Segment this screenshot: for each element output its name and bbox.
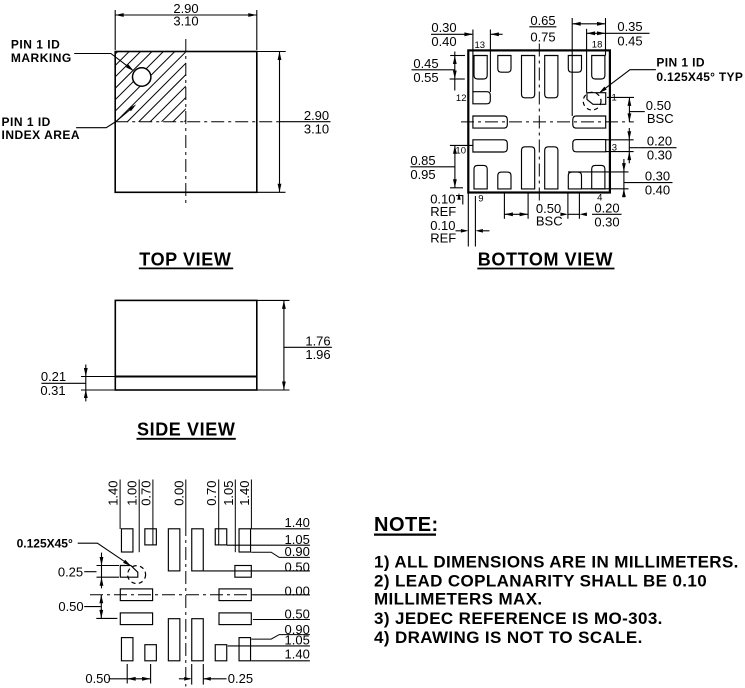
svg-text:0.65: 0.65 bbox=[530, 13, 555, 28]
svg-text:3) JEDEC REFERENCE IS MO-303.: 3) JEDEC REFERENCE IS MO-303. bbox=[374, 609, 663, 628]
svg-text:0.125X45°: 0.125X45° bbox=[17, 537, 73, 551]
svg-text:0.20: 0.20 bbox=[647, 134, 672, 149]
svg-text:1.05: 1.05 bbox=[221, 480, 236, 505]
svg-text:0.25: 0.25 bbox=[58, 564, 83, 579]
svg-text:0.00: 0.00 bbox=[171, 480, 186, 505]
svg-text:0.55: 0.55 bbox=[413, 70, 438, 85]
svg-text:2) LEAD COPLANARITY SHALL BE 0: 2) LEAD COPLANARITY SHALL BE 0.10 bbox=[374, 572, 707, 591]
svg-text:MILLIMETERS MAX.: MILLIMETERS MAX. bbox=[374, 590, 543, 609]
svg-text:MARKING: MARKING bbox=[11, 51, 72, 65]
svg-text:SIDE VIEW: SIDE VIEW bbox=[137, 420, 235, 440]
svg-text:REF: REF bbox=[430, 204, 456, 219]
svg-text:0.70: 0.70 bbox=[138, 480, 153, 505]
svg-text:1.96: 1.96 bbox=[305, 347, 330, 362]
svg-text:18: 18 bbox=[592, 40, 603, 51]
svg-text:0.45: 0.45 bbox=[617, 33, 642, 48]
svg-text:3.10: 3.10 bbox=[304, 121, 329, 136]
svg-text:12: 12 bbox=[456, 93, 467, 104]
svg-text:4) DRAWING IS NOT TO SCALE.: 4) DRAWING IS NOT TO SCALE. bbox=[374, 628, 643, 647]
svg-text:NOTE:: NOTE: bbox=[374, 514, 439, 536]
svg-text:1.40: 1.40 bbox=[106, 480, 121, 505]
svg-text:1) ALL DIMENSIONS ARE IN MILLI: 1) ALL DIMENSIONS ARE IN MILLIMETERS. bbox=[374, 553, 739, 572]
svg-text:0.50: 0.50 bbox=[85, 671, 110, 686]
svg-text:0.75: 0.75 bbox=[530, 29, 555, 44]
svg-text:1.40: 1.40 bbox=[285, 515, 310, 530]
svg-text:0.25: 0.25 bbox=[228, 671, 253, 686]
svg-text:0.95: 0.95 bbox=[410, 167, 435, 182]
svg-text:0.70: 0.70 bbox=[204, 480, 219, 505]
svg-text:PIN 1 ID: PIN 1 ID bbox=[656, 56, 705, 70]
svg-text:9: 9 bbox=[478, 194, 483, 205]
svg-text:BOTTOM VIEW: BOTTOM VIEW bbox=[478, 249, 613, 269]
svg-text:TOP VIEW: TOP VIEW bbox=[139, 249, 231, 269]
svg-text:0.30: 0.30 bbox=[594, 214, 619, 229]
svg-text:0.90: 0.90 bbox=[285, 544, 310, 559]
svg-text:0.50: 0.50 bbox=[58, 599, 83, 614]
svg-text:1.40: 1.40 bbox=[285, 647, 310, 662]
svg-text:0.00: 0.00 bbox=[285, 583, 310, 598]
svg-text:REF: REF bbox=[430, 231, 456, 246]
svg-text:10: 10 bbox=[455, 145, 466, 156]
svg-text:1.40: 1.40 bbox=[237, 480, 252, 505]
svg-text:3.10: 3.10 bbox=[173, 14, 198, 29]
svg-text:0.35: 0.35 bbox=[617, 19, 642, 34]
svg-text:PIN 1 ID: PIN 1 ID bbox=[11, 38, 60, 52]
svg-text:0.20: 0.20 bbox=[594, 200, 619, 215]
svg-text:PIN 1 ID: PIN 1 ID bbox=[2, 115, 51, 129]
svg-text:13: 13 bbox=[475, 40, 486, 51]
svg-text:0.30: 0.30 bbox=[647, 148, 672, 163]
svg-text:INDEX AREA: INDEX AREA bbox=[2, 128, 81, 142]
svg-text:BSC: BSC bbox=[647, 111, 674, 126]
svg-text:0.40: 0.40 bbox=[431, 34, 456, 49]
svg-text:0.125X45° TYP: 0.125X45° TYP bbox=[656, 70, 743, 84]
svg-text:BSC: BSC bbox=[536, 214, 563, 229]
svg-text:0.85: 0.85 bbox=[410, 153, 435, 168]
svg-text:0.40: 0.40 bbox=[645, 183, 670, 198]
svg-text:0.50: 0.50 bbox=[285, 559, 310, 574]
svg-text:0.30: 0.30 bbox=[645, 169, 670, 184]
svg-text:0.45: 0.45 bbox=[413, 56, 438, 71]
svg-text:0.31: 0.31 bbox=[40, 383, 65, 398]
